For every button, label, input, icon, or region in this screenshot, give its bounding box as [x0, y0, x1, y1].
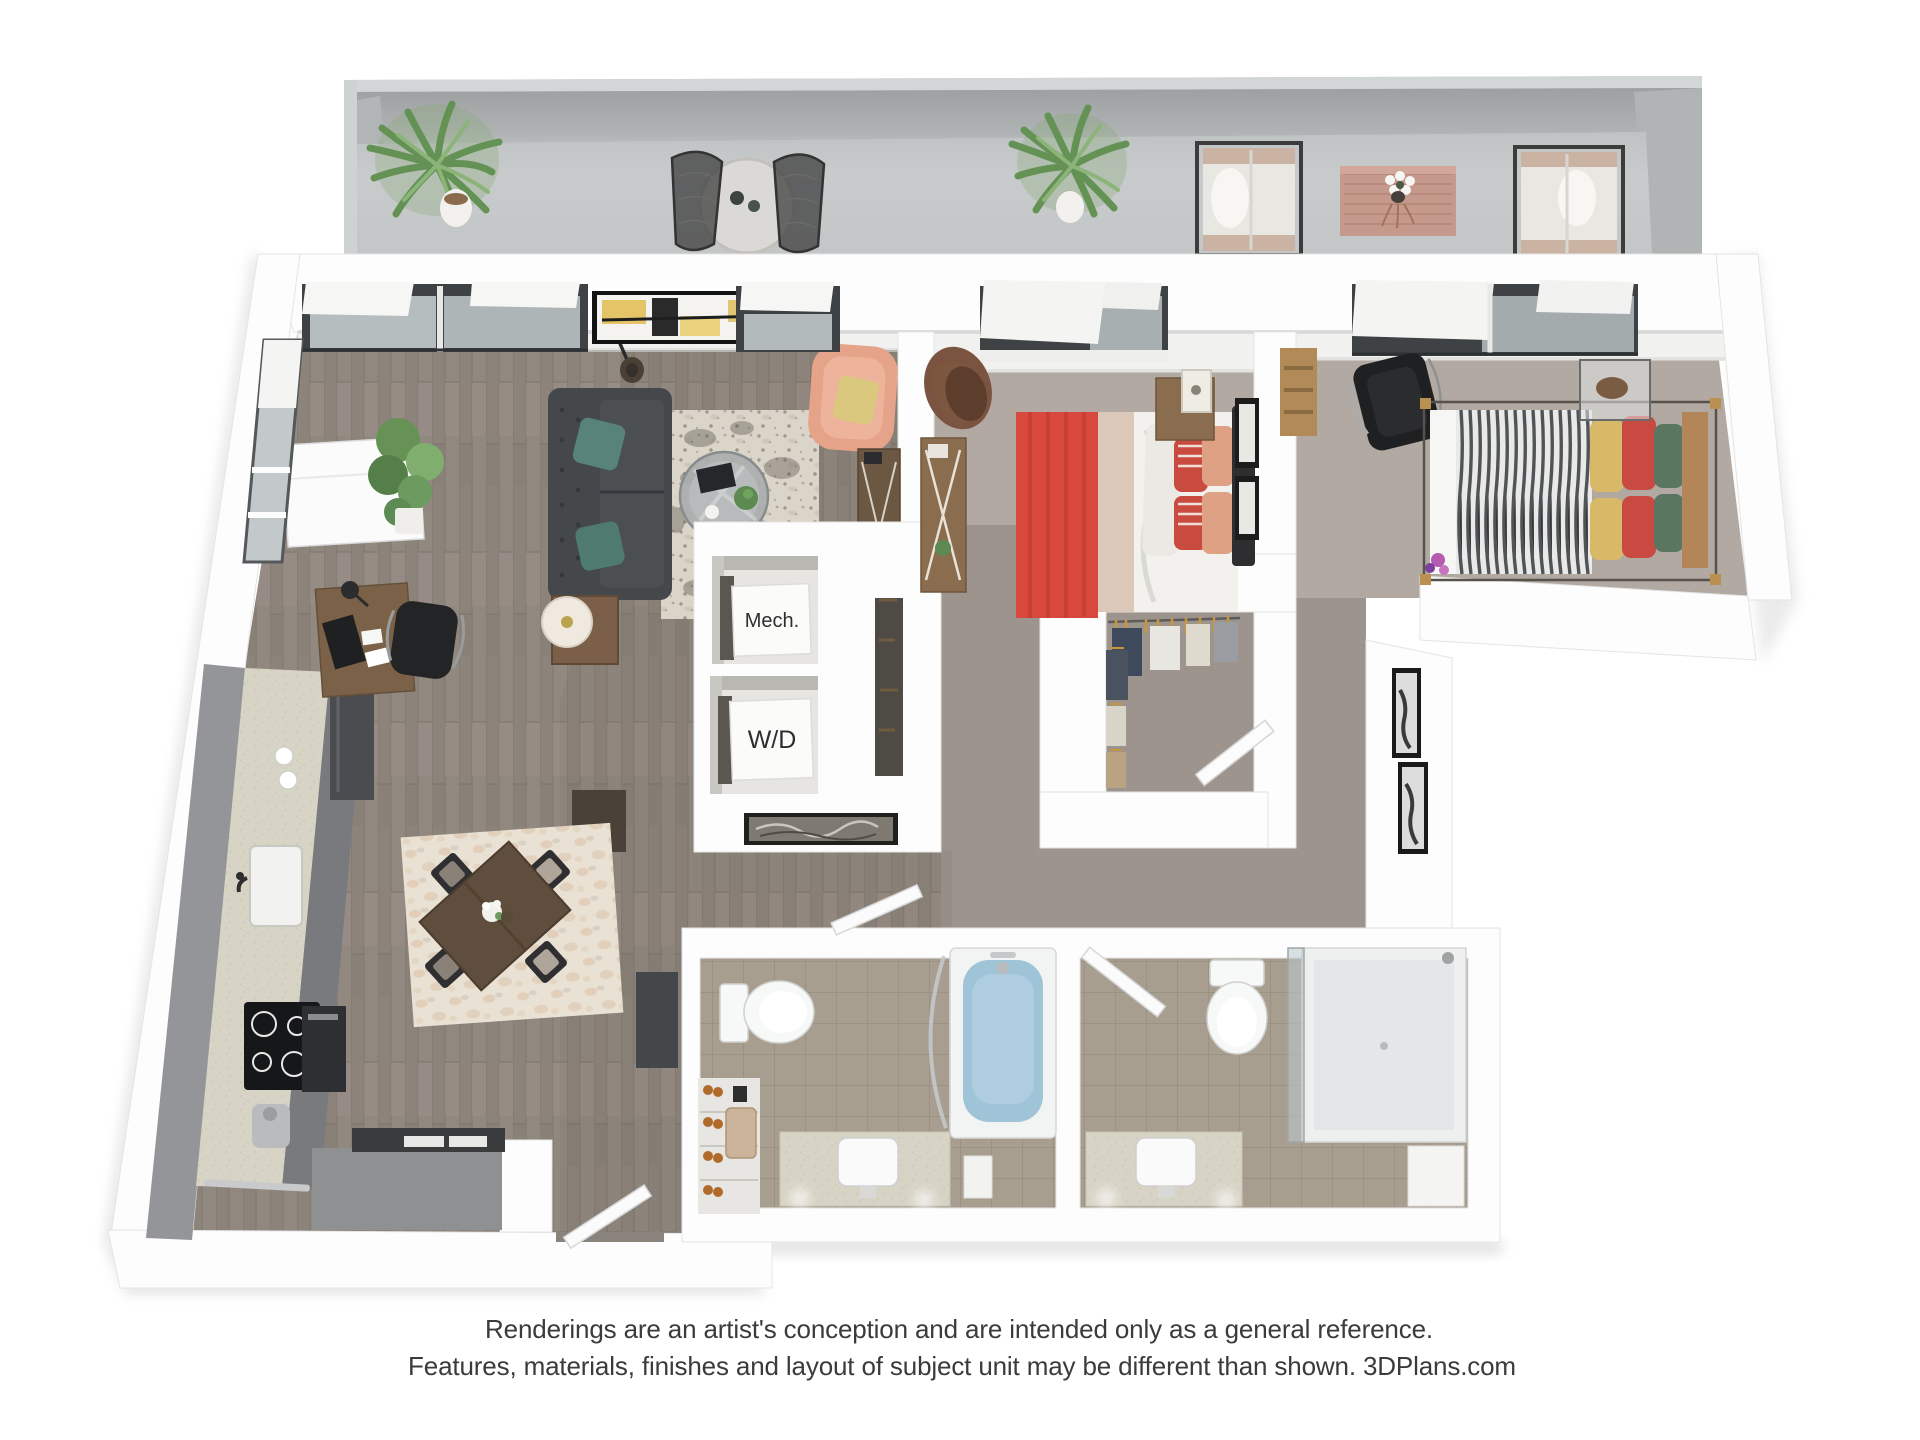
svg-text:W/D: W/D [748, 726, 797, 754]
svg-text:Renderings are an artist's con: Renderings are an artist's conception an… [485, 1314, 1433, 1344]
svg-text:Mech.: Mech. [745, 610, 799, 632]
svg-text:Features, materials, finishes: Features, materials, finishes and layout… [408, 1351, 1516, 1381]
